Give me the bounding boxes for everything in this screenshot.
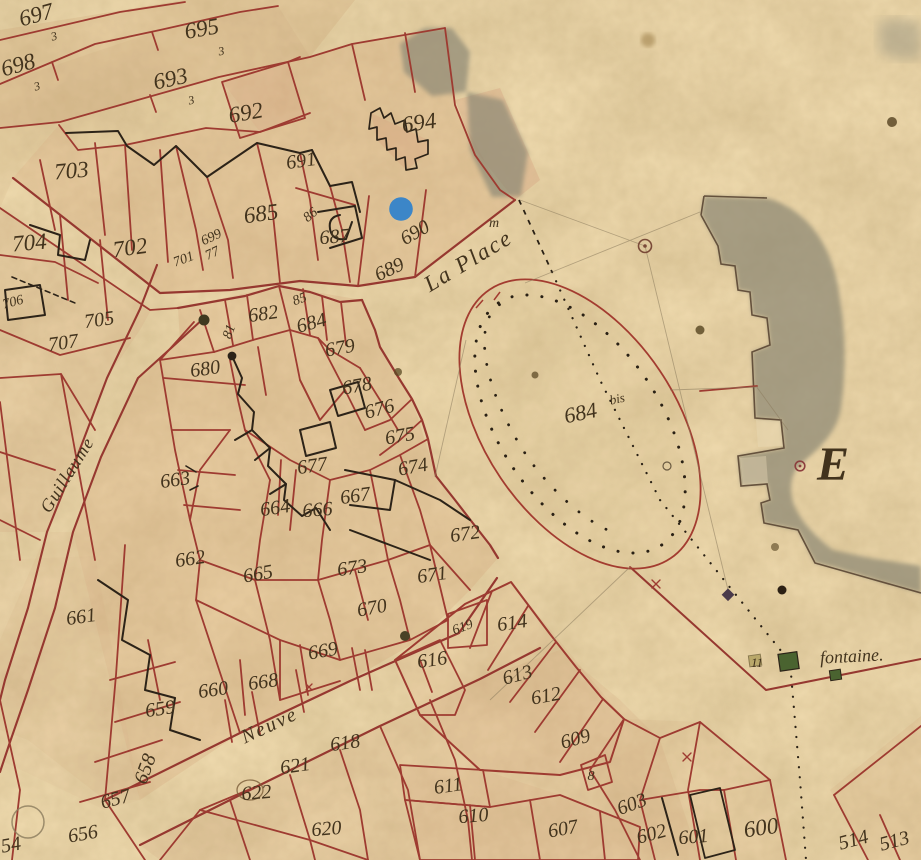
svg-text:668: 668 (247, 669, 280, 695)
svg-text:707: 707 (47, 330, 81, 356)
svg-text:659: 659 (144, 696, 177, 722)
svg-text:620: 620 (311, 817, 343, 842)
svg-text:618: 618 (329, 730, 362, 756)
svg-text:680: 680 (189, 356, 222, 382)
svg-text:673: 673 (336, 555, 369, 581)
svg-text:694: 694 (400, 108, 438, 138)
svg-text:672: 672 (449, 521, 482, 547)
svg-text:682: 682 (247, 301, 280, 327)
svg-text:663: 663 (159, 467, 192, 493)
svg-text:m: m (489, 216, 499, 231)
svg-text:fontaine.: fontaine. (819, 644, 883, 667)
svg-text:667: 667 (339, 483, 373, 509)
svg-text:54: 54 (0, 833, 23, 858)
svg-text:687: 687 (319, 225, 352, 250)
svg-text:704: 704 (11, 229, 48, 257)
svg-text:702: 702 (111, 233, 149, 263)
svg-text:671: 671 (416, 562, 449, 588)
svg-text:622: 622 (241, 781, 273, 806)
svg-text:611: 611 (433, 773, 464, 799)
svg-text:bis: bis (608, 390, 626, 408)
svg-text:616: 616 (416, 647, 449, 673)
svg-text:691: 691 (285, 148, 318, 174)
svg-text:600: 600 (742, 813, 780, 843)
svg-text:662: 662 (174, 546, 207, 572)
svg-text:621: 621 (279, 753, 312, 779)
svg-text:E: E (816, 438, 849, 491)
svg-text:660: 660 (197, 677, 230, 703)
svg-text:664: 664 (259, 495, 292, 521)
svg-text:661: 661 (65, 604, 98, 630)
svg-text:705: 705 (83, 307, 116, 333)
svg-text:11: 11 (751, 655, 763, 670)
svg-text:685: 685 (242, 199, 280, 229)
svg-text:703: 703 (53, 157, 90, 185)
svg-text:8: 8 (588, 769, 595, 784)
svg-text:601: 601 (678, 825, 710, 850)
svg-text:666: 666 (302, 498, 334, 523)
svg-text:610: 610 (458, 804, 490, 829)
svg-text:614: 614 (496, 610, 529, 636)
svg-text:677: 677 (296, 453, 330, 479)
